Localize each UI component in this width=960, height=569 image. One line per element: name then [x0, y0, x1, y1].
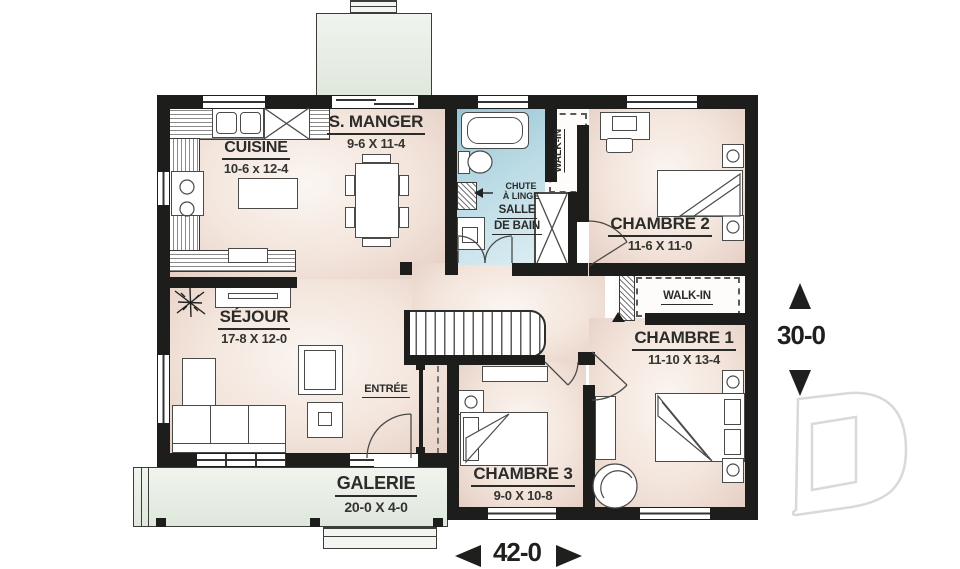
wall-bedroom3-left: [447, 362, 459, 457]
dining-chair: [399, 207, 409, 228]
porch-post: [310, 518, 320, 527]
armchair-cushion: [304, 350, 336, 390]
label-chambre1: CHAMBRE 1 11-10 X 13-4: [624, 328, 744, 367]
dining-chair: [362, 154, 391, 163]
wall-entry-closet: [419, 362, 423, 455]
desk-hutch: [612, 116, 637, 131]
entry-closet-shelf: [437, 366, 439, 454]
sofa: [172, 405, 286, 453]
sofa-back-line: [172, 443, 286, 444]
room-name: CHAMBRE 1: [632, 328, 735, 351]
label-walkin1: WALK-IN: [637, 290, 737, 305]
label-chambre2: CHAMBRE 2 11-6 X 11-0: [600, 214, 720, 253]
label-chambre3: CHAMBRE 3 9-0 X 10-8: [463, 464, 583, 503]
room-dims: 20-0 X 4-0: [344, 499, 407, 515]
wall-bedroom3-stub: [578, 352, 595, 365]
room-name: CUISINE: [222, 139, 290, 160]
wall-bath-corner: [445, 251, 458, 275]
rear-deck: [316, 13, 432, 98]
dining-chair: [345, 175, 355, 196]
porch-post: [433, 518, 443, 527]
sofa-chaise: [182, 358, 216, 408]
wall-bedroom2-left: [577, 125, 589, 222]
wall-bedroom2-bottom: [589, 263, 746, 276]
kitchen-island: [238, 178, 298, 209]
wall-hall-jamb: [400, 262, 412, 275]
room-name: ENTRÉE: [362, 383, 409, 398]
bed: [657, 170, 743, 217]
bathtub-basin: [467, 117, 523, 144]
nightstand: [722, 215, 744, 241]
room-dims: 11-6 X 11-0: [628, 239, 692, 254]
front-door-opening: [374, 454, 418, 467]
table-lamp: [318, 412, 332, 426]
nightstand: [722, 370, 744, 395]
room-dims: 9-0 X 10-8: [494, 489, 553, 504]
arrow-right-icon: [556, 545, 582, 567]
drummond-logo-watermark: [793, 393, 906, 515]
room-name: S. MANGER: [327, 112, 426, 135]
label-walkin-bath: WALK-IN: [540, 118, 576, 184]
annotation-text: À LINGE: [503, 191, 540, 201]
entry-sidelight: [350, 454, 375, 466]
stairs: [404, 310, 546, 358]
label-sejour: SÉJOUR 17-8 X 12-0: [194, 307, 314, 346]
annotation-text: CHUTE: [506, 181, 537, 191]
label-entree: ENTRÉE: [336, 383, 436, 398]
label-s-manger: S. MANGER 9-6 X 11-4: [316, 112, 436, 151]
living-window: [197, 454, 286, 466]
pillow: [724, 399, 741, 425]
wall-stairs-end: [404, 310, 410, 360]
room-name: GALERIE: [335, 473, 418, 497]
label-galerie: GALERIE 20-0 X 4-0: [316, 473, 436, 515]
label-salle-de-bain: SALLE DE BAIN: [467, 204, 567, 235]
bedroom2-window: [627, 96, 697, 108]
dining-chair: [399, 175, 409, 196]
room-dims: 10-6 x 12-4: [224, 162, 288, 177]
wall-bath-left: [445, 107, 457, 253]
room-name: WALK-IN: [661, 290, 713, 305]
dishwasher: [228, 248, 268, 263]
pillow: [724, 429, 741, 455]
bedroom1-window: [640, 508, 710, 519]
nightstand: [722, 144, 744, 168]
label-cuisine: CUISINE 10-6 x 12-4: [196, 139, 316, 177]
desk-chair: [606, 138, 633, 153]
wall-right: [745, 95, 758, 520]
depth-dimension: 30-0: [762, 320, 840, 351]
room-name: DE BAIN: [492, 220, 542, 235]
arrow-down-icon: [789, 370, 811, 396]
porch-post: [156, 518, 166, 527]
stove: [171, 171, 204, 216]
walkin1-bifold-door: [619, 271, 635, 321]
sink-bowl: [216, 112, 237, 134]
sofa-cushion-line: [248, 405, 249, 443]
patio-door: [332, 96, 418, 108]
wall-linen-right: [568, 192, 577, 265]
tv: [228, 293, 278, 299]
label-chute-a-linge: CHUTE À LINGE: [492, 181, 550, 202]
bathroom-window: [478, 96, 528, 108]
galerie-edge-lines: [141, 467, 149, 527]
dining-chair: [362, 238, 391, 247]
width-dimension: 42-0: [480, 537, 554, 568]
room-dims: 17-8 X 12-0: [221, 332, 287, 347]
sofa-cushion-line: [210, 405, 211, 443]
refrigerator: [264, 107, 310, 140]
wall-bedroom3-top: [404, 355, 545, 365]
kitchen-side-window: [158, 172, 169, 205]
room-name: SÉJOUR: [218, 307, 291, 330]
room-name: CHAMBRE 2: [608, 214, 711, 237]
room-name: SALLE: [497, 204, 538, 219]
porch-steps: [323, 527, 437, 549]
room-name: CHAMBRE 3: [471, 464, 574, 487]
dining-chair: [345, 207, 355, 228]
wall-kitchen-living: [157, 277, 297, 288]
dresser: [482, 366, 548, 382]
arrow-up-icon: [789, 283, 811, 309]
wall-cap: [416, 362, 425, 370]
patio-door-panel: [374, 103, 414, 105]
room-dims: 9-6 X 11-4: [347, 137, 405, 152]
kitchen-window: [203, 96, 265, 108]
bedroom3-window: [488, 508, 556, 519]
patio-door-panel: [336, 99, 376, 101]
sink-bowl: [240, 112, 261, 134]
room-dims: 11-10 X 13-4: [648, 353, 720, 368]
pillow: [463, 417, 479, 461]
arrow-left-icon: [455, 545, 481, 567]
dining-table: [355, 163, 399, 238]
toilet-tank: [458, 151, 470, 174]
floor-plan: CUISINE 10-6 x 12-4 S. MANGER 9-6 X 11-4…: [0, 0, 960, 569]
room-name: WALK-IN: [552, 129, 564, 173]
deck-steps: [350, 0, 397, 13]
wall-walkin1-bottom: [645, 313, 746, 325]
living-side-window: [158, 355, 169, 423]
dresser: [595, 396, 616, 460]
wall-bedroom1-left: [583, 385, 595, 507]
nightstand: [722, 458, 744, 483]
